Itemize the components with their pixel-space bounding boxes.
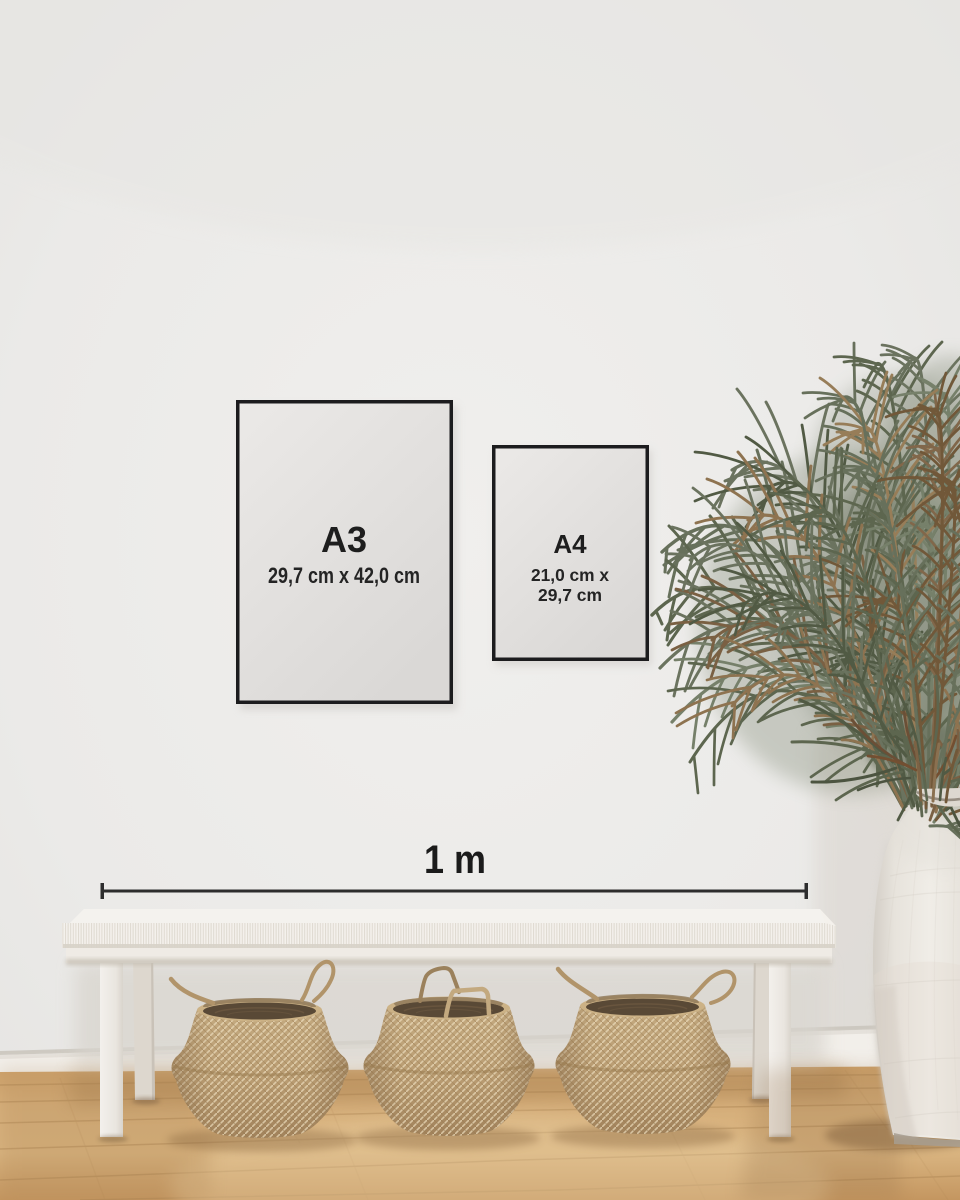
svg-text:1 m: 1 m — [424, 838, 486, 882]
svg-text:A4: A4 — [553, 529, 587, 559]
svg-text:29,7 cm: 29,7 cm — [538, 585, 602, 605]
svg-text:A3: A3 — [321, 519, 367, 560]
svg-text:21,0 cm x: 21,0 cm x — [531, 565, 609, 585]
svg-text:29,7 cm x 42,0 cm: 29,7 cm x 42,0 cm — [268, 563, 420, 588]
